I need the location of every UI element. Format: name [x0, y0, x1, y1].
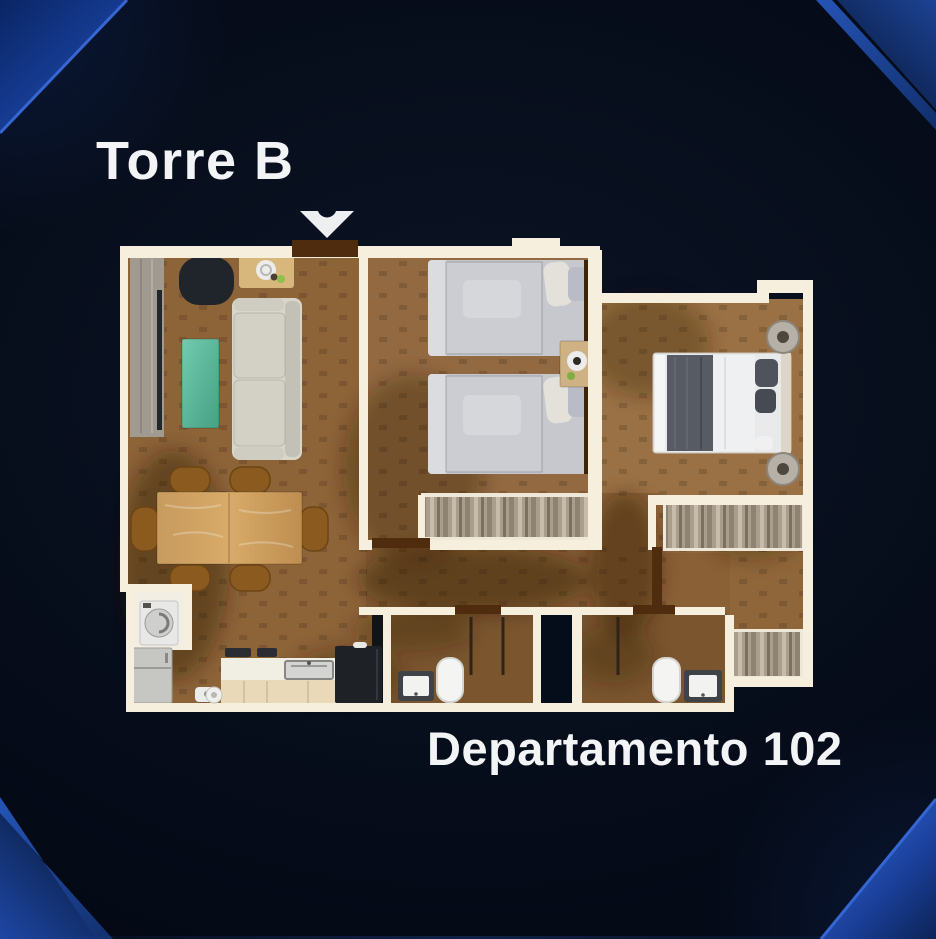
oven — [335, 642, 382, 703]
bedroom2-door — [372, 538, 430, 548]
entrance-arrow-icon — [299, 211, 355, 239]
ensuite-toilet — [653, 658, 680, 702]
trash-bin — [206, 687, 222, 703]
bathroom-toilet — [437, 658, 463, 702]
bathroom-door — [455, 605, 501, 614]
closet-wardrobe-top — [663, 501, 805, 551]
floor-plan — [113, 235, 823, 715]
bedside-table-1 — [767, 321, 799, 353]
refrigerator — [132, 648, 172, 703]
ensuite-sink — [684, 670, 722, 702]
bedroom2-wardrobe — [421, 493, 593, 541]
tv-console — [130, 255, 164, 437]
double-bed — [653, 353, 791, 453]
entry-door — [292, 240, 358, 257]
washing-machine — [140, 601, 178, 645]
armchair — [179, 257, 234, 305]
kitchen-counter — [221, 658, 337, 704]
closet-wardrobe-bottom — [729, 629, 803, 679]
plumbing-shaft — [541, 615, 572, 703]
sofa — [232, 298, 302, 460]
coffee-table — [182, 339, 219, 428]
tower-title: Torre B — [96, 130, 295, 192]
secondary-bedroom — [421, 260, 594, 541]
bedside-table-2 — [767, 453, 799, 485]
bathroom-sink — [398, 671, 434, 701]
closet-door — [652, 547, 662, 609]
twin-bed-2 — [428, 374, 591, 474]
dining-table — [157, 492, 302, 564]
tr-corner-accent — [837, 0, 936, 110]
unit-title: Departamento 102 — [427, 721, 843, 776]
kitchen-sink — [285, 661, 333, 679]
